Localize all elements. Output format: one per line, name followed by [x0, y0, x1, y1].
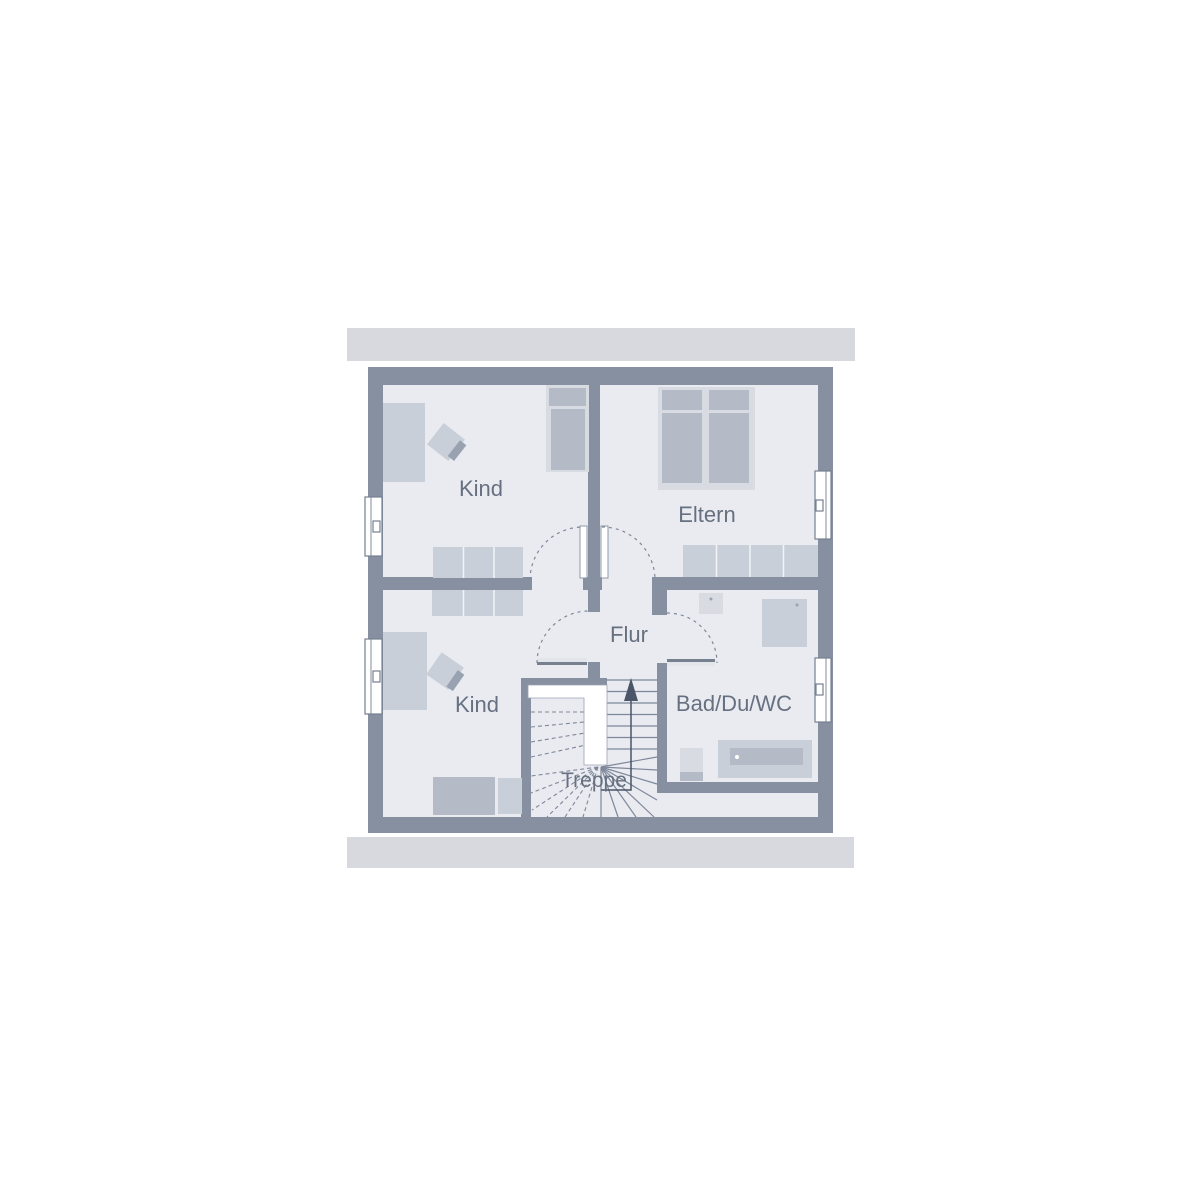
room-label-flur: Flur	[610, 622, 648, 647]
floor-plan: Kind Eltern Kind Flur Bad/Du/WC Treppe	[0, 0, 1200, 1200]
window-icon	[815, 471, 831, 539]
room-label-eltern: Eltern	[678, 502, 735, 527]
bed	[383, 403, 425, 482]
sink	[699, 593, 723, 614]
floor-plan-page: Kind Eltern Kind Flur Bad/Du/WC Treppe	[0, 0, 1200, 1200]
room-label-bad: Bad/Du/WC	[676, 691, 792, 716]
toilet	[680, 748, 703, 781]
bathtub	[718, 740, 812, 778]
room-label-kind-top: Kind	[459, 476, 503, 501]
door-leaf	[580, 526, 587, 578]
room-label-kind-bottom: Kind	[455, 692, 499, 717]
wardrobe	[433, 547, 523, 578]
dresser	[433, 777, 522, 815]
window-icon	[365, 639, 382, 714]
door-leaf	[537, 658, 587, 662]
double-bed	[658, 387, 755, 490]
window-icon	[365, 497, 382, 556]
door-leaf	[667, 659, 715, 662]
wardrobe	[432, 590, 523, 616]
wardrobe	[683, 545, 818, 577]
single-bed	[546, 385, 589, 472]
window-icon	[815, 658, 831, 722]
bed	[383, 632, 427, 710]
roof-band-top	[347, 328, 855, 361]
shower	[762, 599, 807, 647]
room-label-treppe: Treppe	[561, 769, 627, 792]
roof-band-bottom	[347, 837, 854, 868]
door-leaf	[601, 526, 608, 578]
